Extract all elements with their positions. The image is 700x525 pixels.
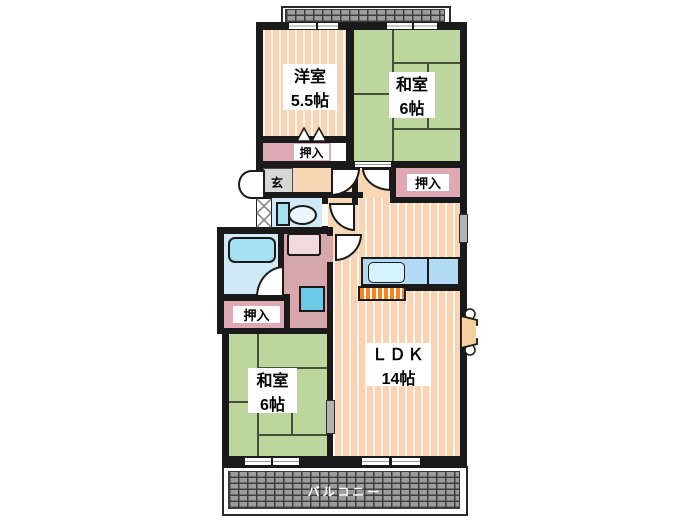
kitchen-sink xyxy=(368,262,405,283)
balcony-door-ldk xyxy=(392,458,420,465)
pipe-shaft-icon xyxy=(256,198,272,228)
wall xyxy=(217,227,224,334)
wall xyxy=(278,234,284,267)
room-size: 6帖 xyxy=(248,391,297,415)
room-size: 6帖 xyxy=(389,95,435,119)
window xyxy=(318,23,338,29)
tatami-line xyxy=(394,128,460,130)
room-label-washitsu-bottom: 和室 6帖 xyxy=(248,368,297,413)
wall xyxy=(217,328,333,334)
tatami-line xyxy=(354,93,392,95)
balcony-door-washitsu xyxy=(245,458,271,465)
entrance-label: 玄 xyxy=(263,174,291,191)
closet-left xyxy=(263,143,292,161)
bathtub xyxy=(228,237,276,263)
washing-machine xyxy=(299,286,325,312)
sliding-partition xyxy=(326,400,335,434)
side-window xyxy=(459,214,468,243)
room-name: 和室 xyxy=(389,71,435,95)
window xyxy=(289,23,316,29)
room-label-yoshitsu: 洋室 5.5帖 xyxy=(283,64,337,110)
exterior-unit-icon xyxy=(459,308,481,356)
bifold-door-icon xyxy=(296,127,328,142)
balcony-door-ldk xyxy=(362,458,389,465)
window xyxy=(414,23,437,29)
wall xyxy=(390,197,461,203)
closet-label: 押入 xyxy=(407,174,449,191)
floor-plan: バルコニー xyxy=(0,0,700,525)
kitchen-stove-mat xyxy=(358,286,406,301)
wall xyxy=(222,328,229,462)
wall xyxy=(460,22,467,468)
room-name: ＬＤＫ xyxy=(367,341,430,365)
closet-label: 押入 xyxy=(233,306,280,323)
balcony-label: バルコニー xyxy=(300,483,390,500)
room-size: 5.5帖 xyxy=(283,87,337,111)
toilet-bowl xyxy=(288,205,317,225)
tatami-line xyxy=(259,434,327,436)
balcony-top-tiles xyxy=(285,9,445,23)
kitchen-counter-divider xyxy=(427,258,429,285)
room-label-ldk: ＬＤＫ 14帖 xyxy=(367,343,430,386)
room-name: 洋室 xyxy=(283,63,337,87)
wall xyxy=(322,192,328,204)
room-size: 14帖 xyxy=(367,365,430,389)
room-name: 和室 xyxy=(248,367,297,391)
sliding-door xyxy=(355,162,391,167)
closet-label: 押入 xyxy=(294,144,329,160)
room-label-washitsu-top: 和室 6帖 xyxy=(389,72,435,118)
wall xyxy=(327,228,333,236)
wall xyxy=(284,294,290,328)
wall xyxy=(346,22,354,168)
balcony-door-washitsu xyxy=(273,458,299,465)
wall xyxy=(256,192,363,198)
entry-door xyxy=(238,170,265,199)
window xyxy=(387,23,412,29)
wash-basin xyxy=(287,233,321,256)
